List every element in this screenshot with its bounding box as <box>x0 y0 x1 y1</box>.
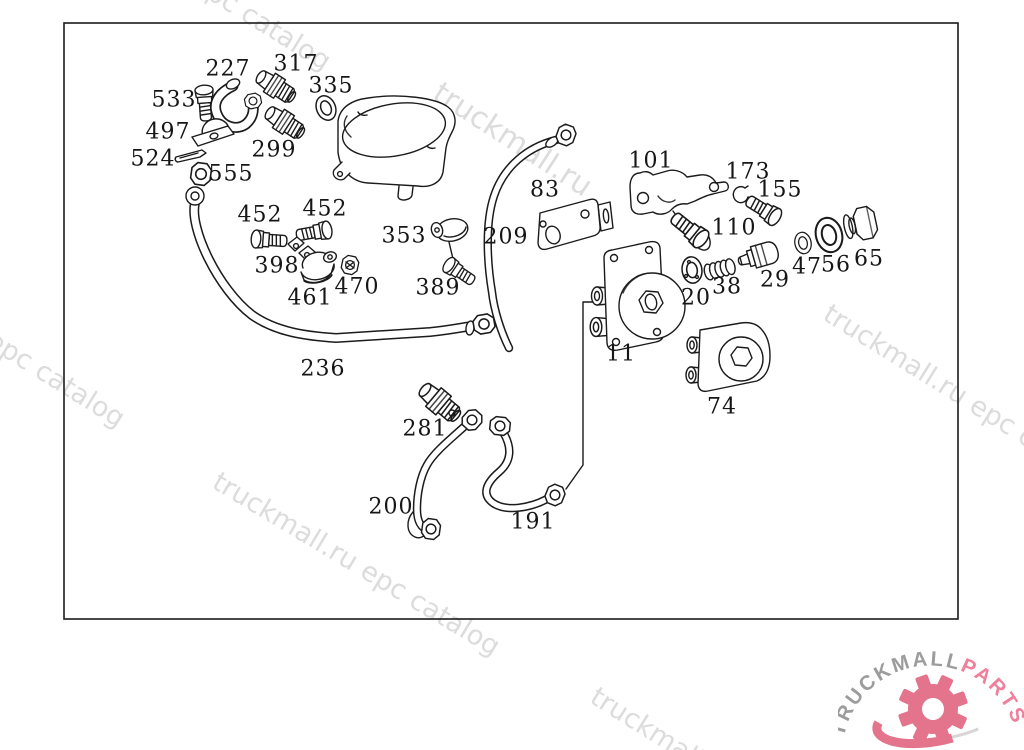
part-drawing-47 <box>793 231 813 255</box>
leader-353-389 <box>449 242 453 259</box>
epc-diagram-page: truckmall.ru epc catalogtruckmall.rutruc… <box>0 0 1024 750</box>
part-drawing-56 <box>812 215 846 255</box>
part-drawing-389 <box>440 255 478 288</box>
part-drawing-65 <box>841 205 879 243</box>
part-drawing-reservoir <box>333 95 455 200</box>
part-drawing-200 <box>408 407 485 541</box>
part-drawing-83 <box>538 199 613 249</box>
part-drawing-191 <box>486 416 567 508</box>
part-drawing-353 <box>430 216 470 259</box>
part-drawing-110 <box>667 209 714 254</box>
part-drawing-470 <box>340 254 360 275</box>
part-drawing-155 <box>742 192 784 228</box>
part-drawing-524 <box>175 150 206 162</box>
part-drawing-pump-11 <box>566 242 685 489</box>
part-drawing-452-left <box>251 230 288 250</box>
diagram-border <box>64 23 958 619</box>
part-drawing-20 <box>680 256 703 285</box>
part-drawing-74 <box>686 323 770 392</box>
part-drawing-281 <box>414 378 466 427</box>
truckmall-logo: TRUCKMALLPARTS <box>838 645 1024 750</box>
part-drawing-38 <box>703 258 737 281</box>
logo-text-parts: PARTS <box>958 654 1024 728</box>
part-drawing-335 <box>313 93 340 123</box>
part-drawing-299 <box>261 102 309 144</box>
part-drawing-29 <box>736 240 781 272</box>
parts-diagram <box>0 0 1024 750</box>
part-drawing-555 <box>190 162 212 186</box>
